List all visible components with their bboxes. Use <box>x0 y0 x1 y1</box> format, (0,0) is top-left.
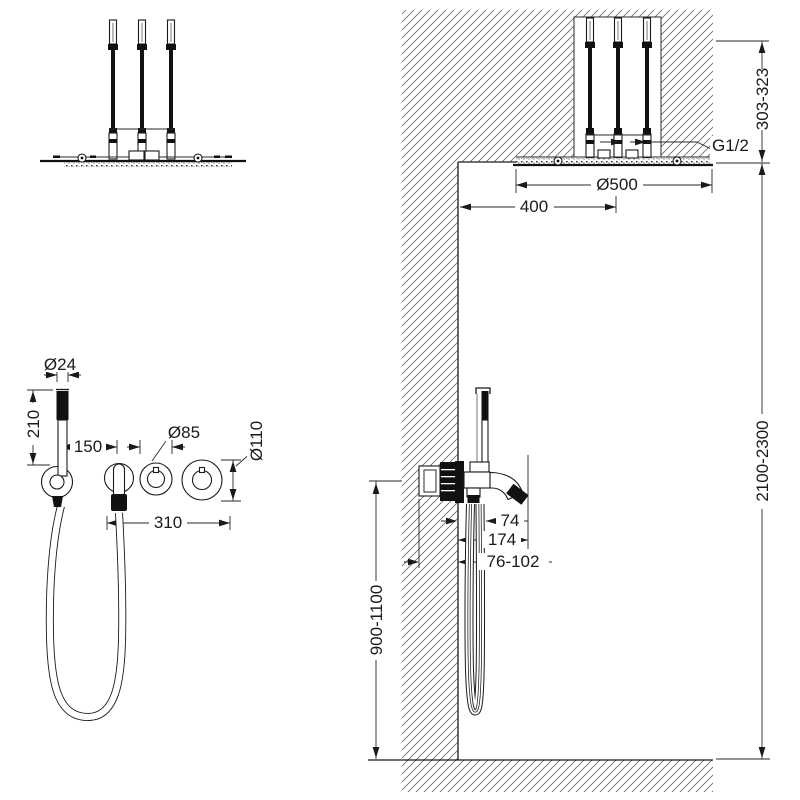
dim-label-embed-depth: 76-102 <box>487 552 540 571</box>
dim-label-handle-trim-diameter: Ø110 <box>247 421 266 461</box>
supply-pipe <box>585 18 595 158</box>
hand-shower-handle <box>58 420 67 476</box>
mixer-trim-body <box>464 472 490 488</box>
inlet-block <box>626 150 638 158</box>
shower-head-plate-front <box>40 151 246 167</box>
dim-label-head-offset: 400 <box>520 197 548 216</box>
inlet-block <box>598 150 610 158</box>
lever-grip <box>111 494 127 511</box>
hand-shower-head <box>482 391 489 420</box>
dim-label-mixer-height: 900-1100 <box>367 585 386 656</box>
holder-bracket <box>470 462 489 472</box>
mixer-lever-trim <box>105 464 134 499</box>
mixer-handle-trim <box>182 460 222 500</box>
inlet-block <box>145 151 159 160</box>
concealed-valve-body <box>419 462 457 501</box>
supply-pipe <box>642 18 652 158</box>
hose-front-loop <box>50 506 122 717</box>
dim-label-hand-shower-offset: 150 <box>74 437 102 456</box>
hose-cone <box>52 496 63 507</box>
mixer-control-trim <box>140 463 172 495</box>
dim-label-hand-shower-length: 210 <box>24 410 43 438</box>
dim-label-head-height: 2100-2300 <box>753 420 772 501</box>
hand-shower-head <box>57 391 69 420</box>
overhead-shower-front-view <box>40 20 246 167</box>
hatch-region <box>402 10 713 792</box>
hand-shower-front <box>42 390 73 498</box>
supply-pipe <box>166 20 176 159</box>
dim-label-ceiling-depth: 303-323 <box>753 68 772 130</box>
supply-pipe <box>613 18 623 158</box>
hose-side-loop <box>469 504 481 711</box>
holder-pivot <box>50 475 64 489</box>
supply-pipe <box>108 20 118 159</box>
dim-label-spout-offset: 74 <box>501 511 520 530</box>
dim-label-hand-shower-diameter: Ø24 <box>44 355 76 374</box>
dim-label-thread: G1/2 <box>712 136 749 155</box>
installation-drawing: Ø24 210 150 Ø85 Ø110 310 Ø500 400 G1/2 3… <box>0 0 800 800</box>
inlet-block <box>129 151 144 160</box>
wall-flange <box>455 461 464 503</box>
dim-label-trim-diameter: Ø85 <box>168 423 200 442</box>
dim-label-trim-span: 310 <box>154 513 182 532</box>
drawing-svg: Ø24 210 150 Ø85 Ø110 310 Ø500 400 G1/2 3… <box>0 0 800 800</box>
dim-label-head-diameter: Ø500 <box>596 175 638 194</box>
spout-assembly <box>464 472 529 505</box>
building-section-hatch <box>368 10 713 792</box>
hand-shower-side <box>470 388 490 472</box>
dim-label-spout-reach: 174 <box>488 530 516 549</box>
supply-pipe <box>137 20 147 159</box>
hand-shower-handle <box>482 420 488 463</box>
